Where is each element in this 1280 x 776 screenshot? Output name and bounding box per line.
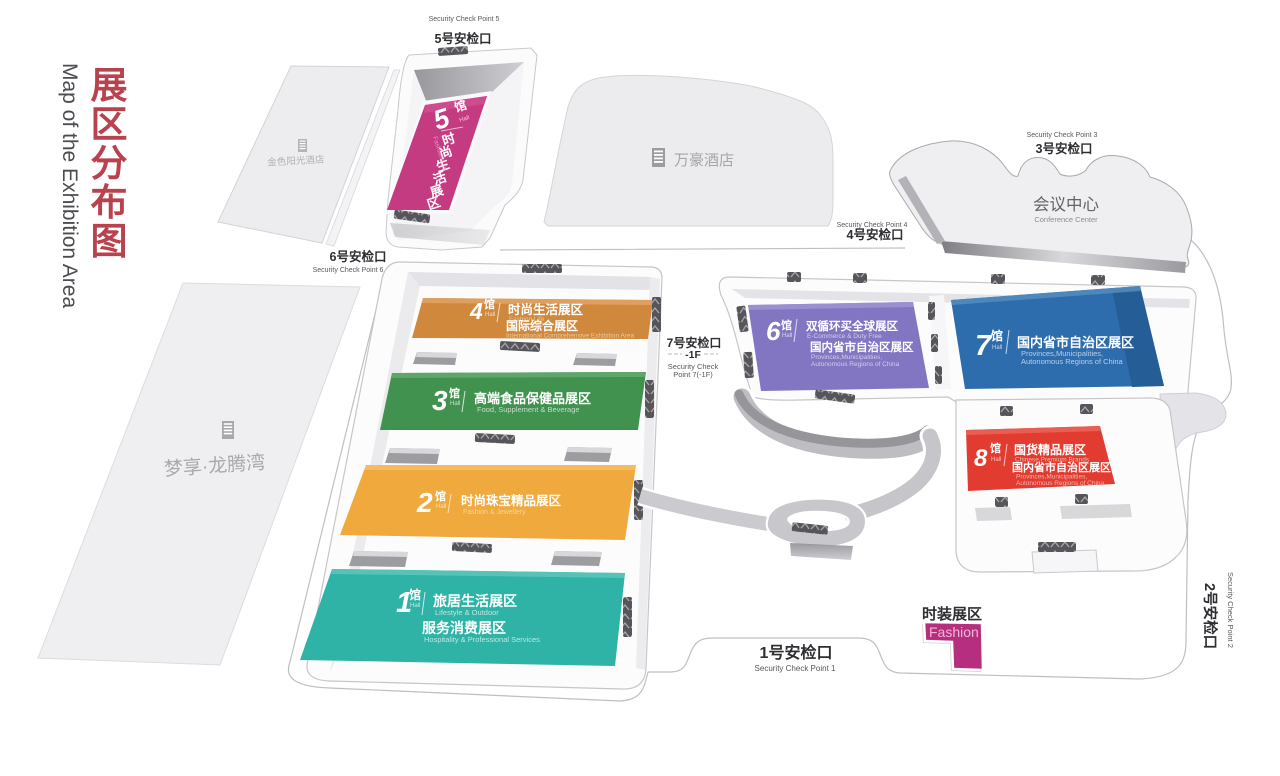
svg-text:布: 布 (91, 182, 128, 223)
svg-text:双循环买全球展区: 双循环买全球展区 (805, 319, 898, 333)
svg-text:旅居生活展区: 旅居生活展区 (433, 593, 517, 609)
svg-text:馆: 馆 (435, 489, 446, 503)
svg-text:Security Check Point 1: Security Check Point 1 (755, 664, 836, 673)
svg-text:国内省市自治区展区: 国内省市自治区展区 (1012, 460, 1111, 474)
svg-text:Autonomous Regions of China: Autonomous Regions of China (1016, 480, 1105, 487)
svg-text:国内省市自治区展区: 国内省市自治区展区 (1017, 335, 1134, 350)
svg-text:Hall: Hall (410, 603, 420, 609)
svg-text:Provinces,Municipalities,: Provinces,Municipalities, (811, 354, 882, 361)
svg-text:4: 4 (469, 298, 483, 324)
svg-text:1号安检口: 1号安检口 (760, 643, 833, 662)
svg-text:3号安检口: 3号安检口 (1036, 141, 1093, 156)
svg-text:8: 8 (974, 445, 988, 472)
svg-text:7号安检口: 7号安检口 (667, 335, 722, 350)
svg-text:Hall: Hall (485, 312, 495, 318)
svg-text:-1F: -1F (685, 349, 701, 361)
svg-text:会议中心: 会议中心 (1033, 195, 1099, 214)
svg-text:馆: 馆 (990, 441, 1001, 455)
svg-text:Point 7(-1F): Point 7(-1F) (673, 370, 713, 379)
svg-text:时装展区: 时装展区 (922, 605, 982, 623)
svg-text:2: 2 (416, 487, 433, 518)
svg-text:Hall: Hall (992, 345, 1002, 351)
svg-text:Security Check Point 6: Security Check Point 6 (313, 267, 384, 274)
svg-text:Conference Center: Conference Center (1034, 215, 1098, 224)
svg-text:服务消费展区: 服务消费展区 (422, 620, 506, 636)
svg-text:Security Check Point 5: Security Check Point 5 (429, 16, 500, 23)
svg-text:6: 6 (766, 316, 781, 346)
svg-text:Hall: Hall (991, 457, 1001, 463)
svg-text:区: 区 (91, 104, 128, 145)
svg-text:Autonomous Regions of China: Autonomous Regions of China (811, 361, 900, 368)
svg-text:Hall: Hall (436, 504, 446, 510)
svg-text:Autonomous Regions of China: Autonomous Regions of China (1021, 357, 1124, 366)
svg-text:2号安检口: 2号安检口 (1201, 583, 1219, 649)
svg-text:6号安检口: 6号安检口 (330, 249, 387, 264)
svg-text:国际综合展区: 国际综合展区 (506, 318, 578, 333)
svg-text:万豪酒店: 万豪酒店 (674, 151, 734, 169)
svg-text:馆: 馆 (484, 297, 495, 311)
svg-text:高端食品保健品展区: 高端食品保健品展区 (474, 391, 591, 406)
svg-text:馆: 馆 (991, 328, 1003, 343)
svg-text:Security Check Point 3: Security Check Point 3 (1027, 132, 1098, 139)
svg-text:图: 图 (91, 221, 128, 262)
svg-text:展: 展 (91, 65, 128, 106)
svg-text:Hall: Hall (782, 333, 792, 339)
svg-text:Hall: Hall (450, 401, 460, 407)
svg-text:Food, Supplement & Beverage: Food, Supplement & Beverage (477, 405, 580, 414)
svg-text:5号安检口: 5号安检口 (435, 31, 492, 46)
svg-text:Map of the Exhibition Area: Map of the Exhibition Area (58, 63, 81, 308)
svg-text:馆: 馆 (409, 587, 421, 602)
svg-text:International Comprehensive Ex: International Comprehensive Exhibition A… (506, 333, 635, 340)
svg-text:Security Check Point 2: Security Check Point 2 (1226, 572, 1235, 648)
svg-text:Lifestyle & Outdoor: Lifestyle & Outdoor (435, 608, 499, 617)
svg-text:3: 3 (432, 385, 448, 416)
svg-text:国内省市自治区展区: 国内省市自治区展区 (810, 340, 914, 354)
svg-text:Fashion & Jewellery: Fashion & Jewellery (463, 509, 526, 516)
svg-text:时尚珠宝精品展区: 时尚珠宝精品展区 (461, 493, 562, 508)
svg-text:4号安检口: 4号安检口 (847, 227, 904, 242)
svg-text:Hospitality & Professional Ser: Hospitality & Professional Services (424, 635, 540, 644)
svg-text:E-Commerce & Duty Free: E-Commerce & Duty Free (807, 333, 882, 340)
svg-text:时尚生活展区: 时尚生活展区 (508, 302, 584, 317)
svg-text:Fashion: Fashion (929, 624, 979, 640)
svg-text:馆: 馆 (449, 386, 460, 400)
svg-text:分: 分 (91, 143, 128, 184)
svg-text:馆: 馆 (781, 318, 792, 332)
svg-text:国货精品展区: 国货精品展区 (1014, 442, 1086, 457)
